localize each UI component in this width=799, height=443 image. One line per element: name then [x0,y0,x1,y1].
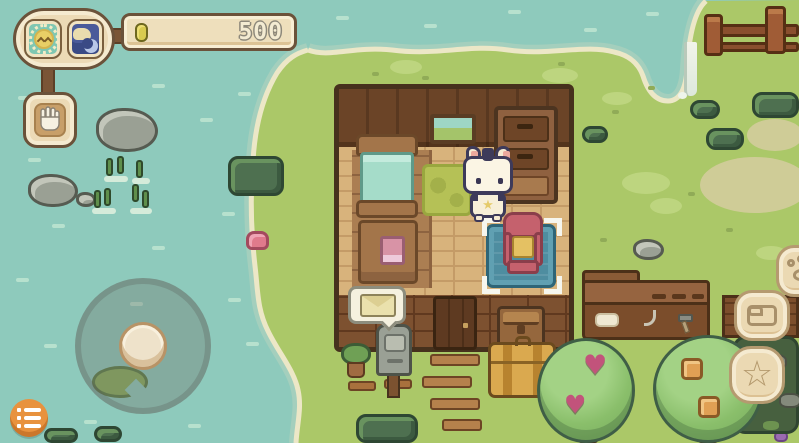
drawer-handle [517,154,533,159]
envelope-flap [362,296,394,307]
menu-row [17,408,48,412]
grass-patch [622,172,670,194]
hand-tool-panel [34,103,66,137]
bush [706,128,744,150]
list-bar-icon [24,416,41,420]
currency-bar: 500 [121,13,297,51]
pond-stone [779,393,799,408]
ripple [130,208,152,214]
reed [117,156,124,174]
grass-patch [650,198,682,214]
chest-clasp [517,325,525,334]
water-dash [246,342,259,346]
list-dot-icon [17,408,21,412]
stone-step [430,354,480,366]
water-dash [584,28,597,32]
grass-rock [633,239,664,260]
cat-strap [473,192,478,201]
day-status-icon[interactable] [24,19,62,59]
bush [582,126,608,143]
sun-eye-icon [44,37,52,45]
waterfall [684,42,697,96]
orange-fruit [681,358,703,380]
ripple [92,208,116,214]
water-dash [84,420,97,424]
cat-head-stripe [482,148,494,161]
menu-button[interactable] [10,399,48,437]
workbench-slot [652,294,666,299]
reed [132,184,139,202]
potted-plant-pot [347,362,365,378]
water-dash [28,158,41,162]
hand-tool-button[interactable] [23,92,77,148]
cat-star-badge: ★ [482,199,494,212]
sun-face-icon [34,29,54,49]
bush [690,100,720,119]
water-dash [238,92,251,96]
paw-pad [793,269,799,281]
stone-step [430,398,480,410]
joystick-knob[interactable] [119,322,167,370]
waterfall-splash [678,92,687,99]
fence-post [704,14,723,56]
list-bar-icon [24,408,41,412]
grass-speck [558,62,565,66]
hand-icon [37,106,63,134]
grass-patch [602,92,632,105]
water-dash [44,344,57,348]
star-button[interactable]: ☆ [729,346,785,404]
suitcase-strap [503,345,512,395]
pond-moss [763,421,779,430]
workbench [582,266,710,342]
grass-speck [648,86,655,90]
reed [106,158,113,176]
water-tuft [44,428,78,443]
bag-button[interactable] [734,290,790,341]
reed [104,188,111,206]
cat-foot [492,214,502,222]
grass-speck [726,228,733,232]
water-dash [200,118,213,122]
stone-step [422,376,472,388]
coin-icon [135,23,148,42]
water-dash [52,224,65,228]
reed [94,190,101,208]
small-rock [76,192,96,207]
chest-lid [503,312,539,325]
grass-patch [542,68,578,83]
menu-row [17,416,48,420]
water-dash [222,212,235,216]
envelope-icon [360,294,396,317]
paw-print-icon [782,251,799,291]
reed [136,160,143,178]
night-status-icon[interactable] [67,19,105,59]
cat-strap [498,192,503,201]
house-door[interactable] [433,296,477,350]
placement-selection-brackets[interactable] [482,218,562,294]
list-dot-icon [17,416,21,420]
drawer-handle [517,124,533,129]
grass-patch [390,60,422,74]
star-icon: ☆ [741,357,773,393]
water-dash [424,24,437,28]
cat-head [463,156,513,194]
boulder-rock [96,108,158,152]
water-dash [188,424,201,428]
water-lily-flower [246,231,269,250]
bag-flap-icon [748,306,763,316]
mailbox[interactable] [376,324,412,376]
menu-row [17,424,48,428]
bracket-corner [544,218,562,236]
grass-speck [688,192,695,196]
water-dash [152,84,165,88]
suitcase-handle [515,336,531,346]
grass-speck [372,72,379,76]
shore-bush [228,156,284,196]
wood-plank [348,381,376,391]
paw-button[interactable] [776,245,799,297]
orange-fruit [698,396,720,418]
workbench-slot [672,294,686,299]
water-tuft [94,426,122,442]
grass-speck [600,238,607,242]
satchel-bag-icon [747,305,777,326]
mailbox-slot [387,359,403,363]
list-bar-icon [24,424,41,428]
bracket-corner [544,276,562,294]
dresser-drawer [503,116,549,142]
water-rock [28,174,78,207]
bed-mattress[interactable] [360,152,414,204]
reed [142,190,149,208]
water-dash [646,12,659,16]
mail-bubble[interactable] [348,286,406,324]
cat-foot [474,214,484,222]
workbench-slot [692,294,704,299]
bush [752,92,799,118]
stone-step [442,419,482,431]
door-knob [463,323,468,328]
water-dash [336,16,349,20]
mailbox-face [384,334,406,352]
picture-frame[interactable] [430,114,476,144]
moon-crescent-cut [82,38,93,49]
bush [356,414,418,443]
bed-footboard [356,200,418,218]
heart-fruit: ♥ [583,352,607,379]
grass-speck [422,76,429,80]
currency-amount: 500 [238,19,283,45]
cat-eye [498,178,503,184]
game-scene: ★ ♥ ♥ [0,0,799,443]
cat-eye [476,178,481,184]
heart-fruit: ♥ [564,392,586,417]
fence-post [765,6,786,54]
bracket-corner [482,276,500,294]
water-dash [508,10,521,14]
grass-speck [612,110,619,114]
water-dash [152,246,165,250]
white-cat-character[interactable]: ★ [463,146,513,222]
ripple [104,176,128,182]
water-dash [16,278,29,282]
status-group [13,8,115,70]
water-dash [228,298,241,302]
paw-toe [787,259,795,267]
pink-book [380,236,405,265]
cloth-icon [595,313,619,327]
list-dot-icon [17,424,21,428]
mailbox-post [387,374,400,398]
